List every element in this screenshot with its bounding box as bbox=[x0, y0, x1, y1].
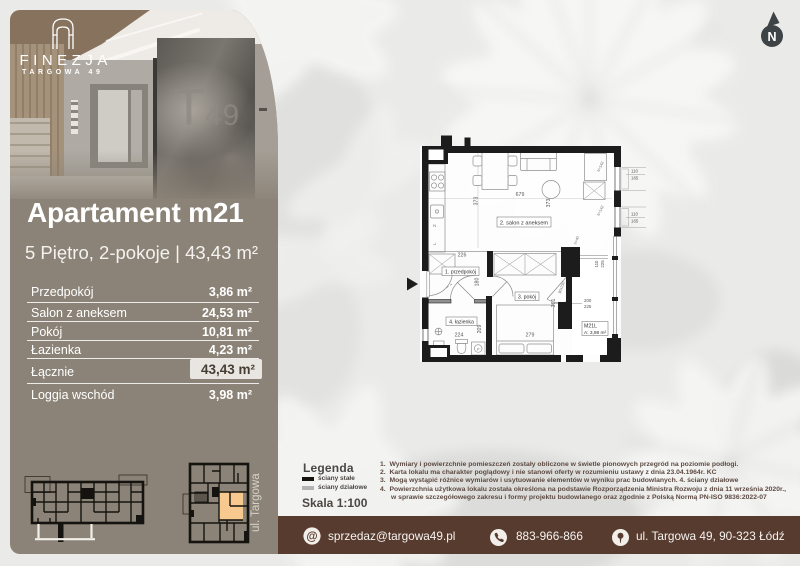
svg-text:4. łazienka: 4. łazienka bbox=[449, 319, 474, 325]
svg-text:180: 180 bbox=[475, 278, 481, 287]
svg-text:Z: Z bbox=[432, 224, 437, 227]
svg-text:200: 200 bbox=[584, 298, 592, 303]
svg-text:225: 225 bbox=[600, 260, 605, 268]
svg-text:P: P bbox=[477, 346, 480, 351]
svg-text:2. salon z aneksem: 2. salon z aneksem bbox=[500, 220, 549, 226]
svg-text:M21L: M21L bbox=[584, 324, 597, 330]
svg-text:361: 361 bbox=[551, 299, 557, 308]
svg-text:1. przedpokój: 1. przedpokój bbox=[445, 269, 476, 275]
svg-text:3. pokój: 3. pokój bbox=[518, 294, 536, 300]
svg-text:110: 110 bbox=[631, 212, 639, 217]
svg-text:679: 679 bbox=[516, 192, 525, 198]
svg-text:@: @ bbox=[306, 531, 317, 543]
svg-text:165: 165 bbox=[631, 219, 639, 224]
svg-text:110: 110 bbox=[631, 169, 639, 174]
svg-text:224: 224 bbox=[455, 333, 464, 339]
svg-text:225: 225 bbox=[584, 304, 592, 309]
svg-text:373: 373 bbox=[474, 197, 480, 206]
svg-text:279: 279 bbox=[526, 333, 535, 339]
svg-text:165: 165 bbox=[631, 176, 639, 181]
svg-text:110: 110 bbox=[594, 260, 599, 268]
svg-text:226: 226 bbox=[458, 253, 467, 259]
svg-text:373: 373 bbox=[546, 199, 552, 208]
svg-text:N: N bbox=[767, 30, 776, 44]
svg-text:A: 3,98 m²: A: 3,98 m² bbox=[584, 330, 607, 336]
svg-text:209: 209 bbox=[477, 325, 483, 334]
